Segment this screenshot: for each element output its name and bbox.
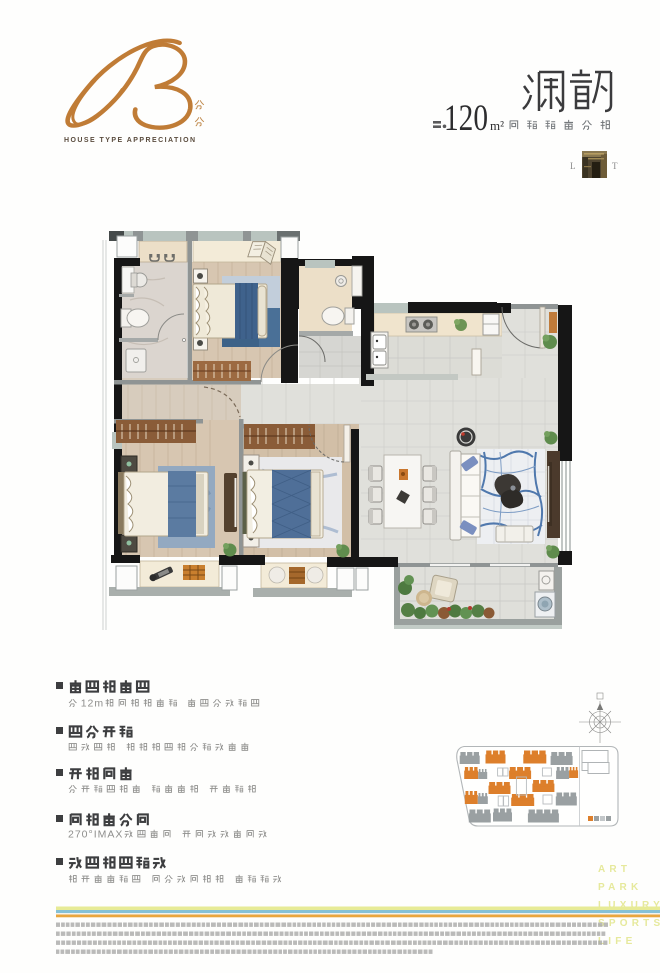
- svg-text:T: T: [612, 161, 618, 171]
- svg-text:L: L: [570, 161, 576, 171]
- svg-text:12m: 12m: [81, 698, 104, 710]
- svg-text:270°IMAX: 270°IMAX: [68, 829, 123, 841]
- svg-text:HOUSE TYPE APPRECIATION: HOUSE TYPE APPRECIATION: [64, 137, 197, 144]
- svg-text:m²: m²: [490, 118, 504, 133]
- svg-text:120: 120: [444, 98, 488, 139]
- svg-text:PARK: PARK: [598, 882, 642, 893]
- svg-text:ART: ART: [598, 864, 631, 875]
